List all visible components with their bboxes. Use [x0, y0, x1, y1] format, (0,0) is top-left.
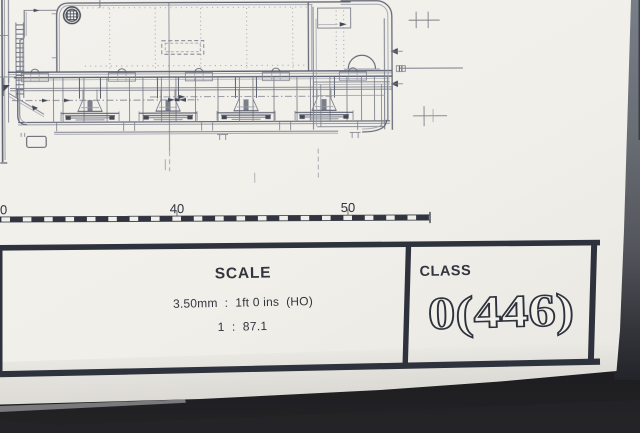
svg-text:40: 40: [170, 201, 185, 216]
svg-text:50: 50: [341, 200, 356, 215]
svg-text:0(446): 0(446): [427, 284, 574, 339]
svg-text:30: 30: [0, 202, 7, 217]
svg-text:SCALE: SCALE: [215, 264, 272, 282]
svg-text:1 : 87.1: 1 : 87.1: [218, 319, 268, 334]
svg-text:CLASS: CLASS: [419, 263, 471, 280]
svg-text:3.50mm : 1ft 0 ins (HO): 3.50mm : 1ft 0 ins (HO): [173, 294, 313, 311]
